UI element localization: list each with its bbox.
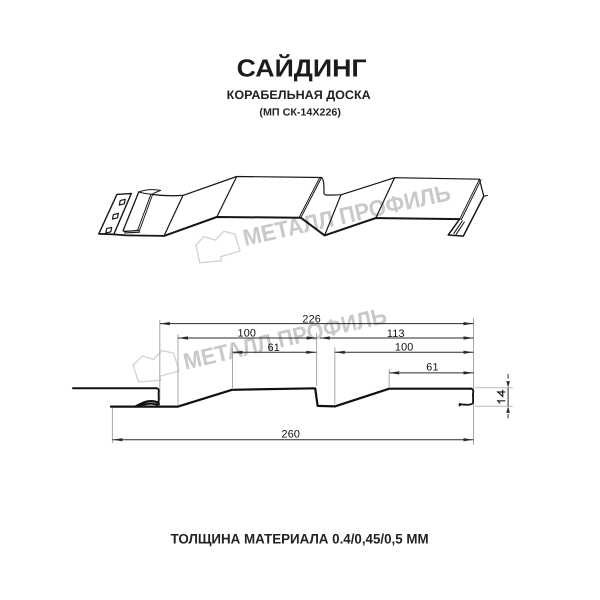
svg-text:113: 113: [387, 328, 405, 340]
svg-text:226: 226: [302, 313, 321, 325]
svg-text:260: 260: [281, 429, 300, 441]
svg-text:КОРАБЕЛЬНАЯ ДОСКА: КОРАБЕЛЬНАЯ ДОСКА: [227, 88, 371, 102]
svg-text:61: 61: [426, 361, 438, 373]
svg-text:(МП СК-14Х226): (МП СК-14Х226): [259, 107, 341, 118]
svg-text:ТОЛЩИНА МАТЕРИАЛА 0.4/0,45/0,5: ТОЛЩИНА МАТЕРИАЛА 0.4/0,45/0,5 ММ: [171, 532, 429, 547]
svg-text:100: 100: [395, 341, 414, 353]
svg-text:САЙДИНГ: САЙДИНГ: [237, 53, 367, 82]
svg-text:100: 100: [237, 328, 256, 340]
svg-text:МЕТАЛЛ ПРОФИЛЬ: МЕТАЛЛ ПРОФИЛЬ: [240, 179, 453, 251]
svg-text:61: 61: [268, 342, 280, 354]
